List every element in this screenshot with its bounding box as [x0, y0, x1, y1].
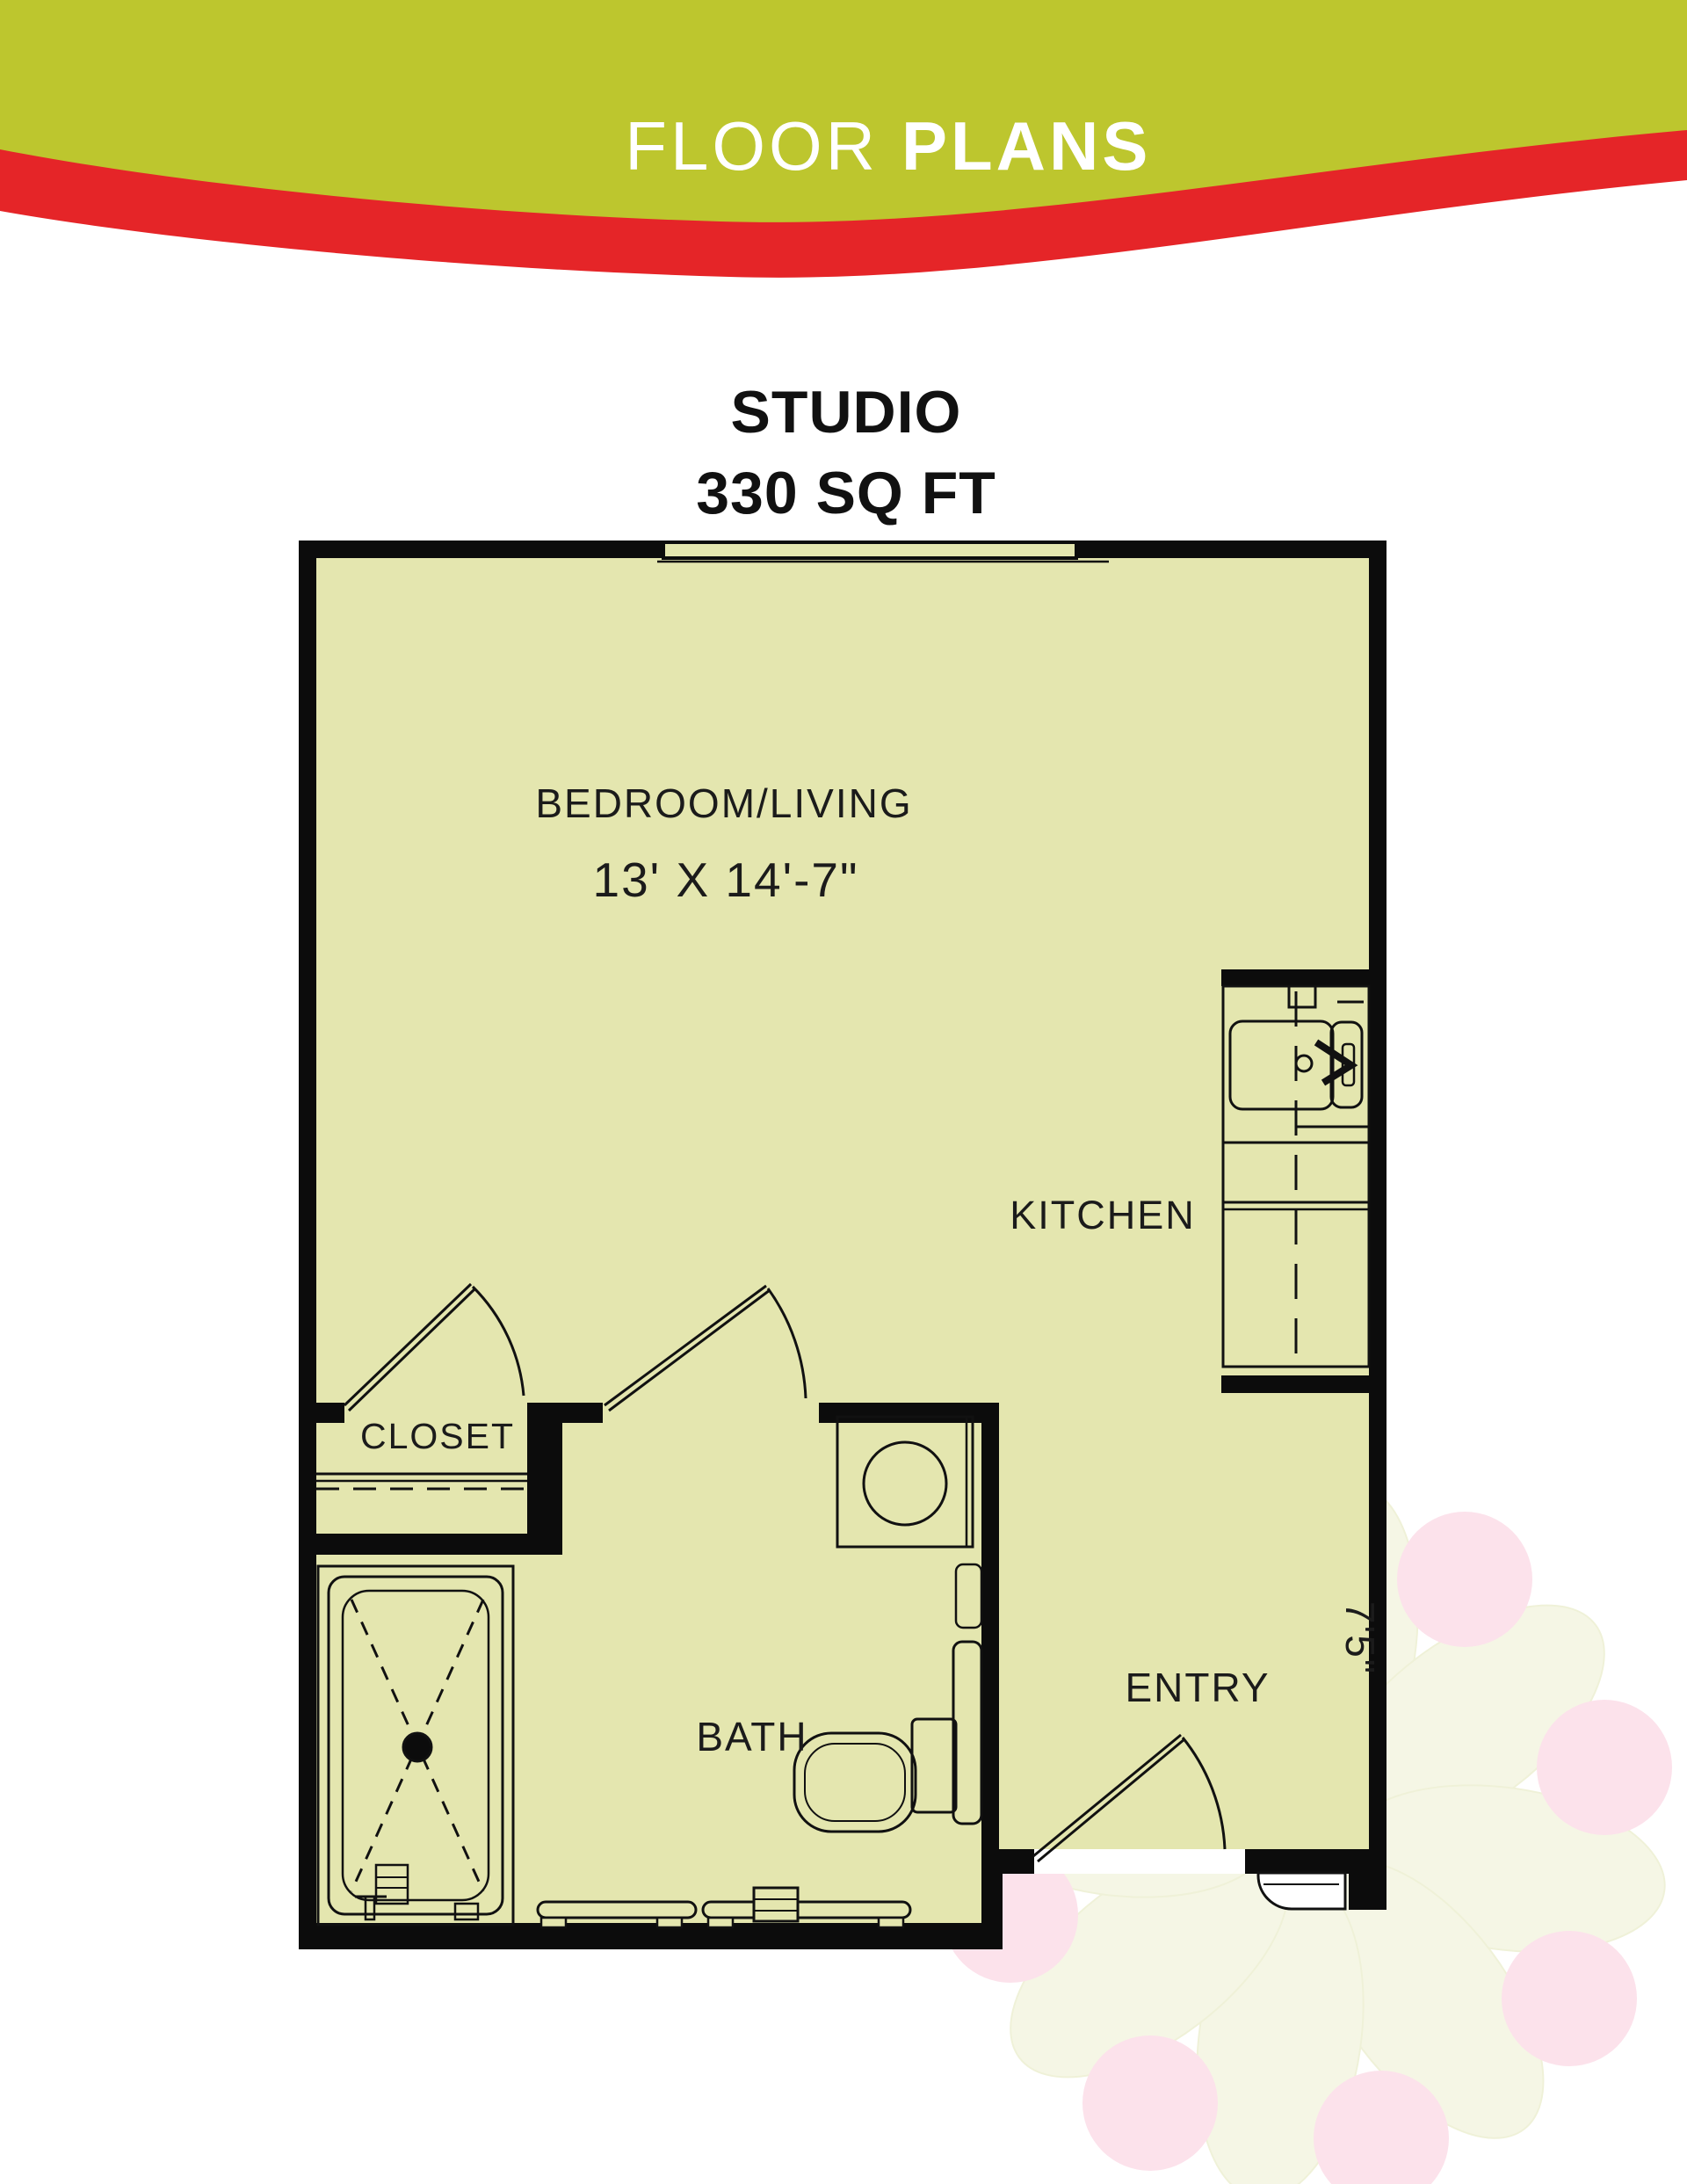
brochure-page: FLOOR PLANS STUDIO 330 SQ FT — [0, 0, 1687, 2184]
header-title-light: FLOOR — [625, 107, 879, 185]
closet-bottom-wall — [299, 1534, 562, 1555]
kitchen-wall-bottom — [1221, 1375, 1387, 1393]
header-title-bold: PLANS — [901, 107, 1151, 185]
bedroom-living-dimensions: 13' X 14'-7" — [592, 853, 858, 907]
bedroom-living-label: BEDROOM/LIVING — [535, 780, 912, 826]
entry-label: ENTRY — [1125, 1665, 1270, 1710]
window-icon — [663, 542, 1076, 558]
closet-wall-left-stub — [299, 1403, 344, 1423]
kitchen-label: KITCHEN — [1010, 1193, 1196, 1237]
closet-label: CLOSET — [360, 1416, 515, 1456]
bath-entry-wall — [981, 1403, 999, 1923]
corner-step-stub — [1349, 1873, 1387, 1910]
entry-bottom-stub-left — [999, 1849, 1034, 1874]
entry-threshold-icon — [1258, 1873, 1345, 1909]
closet-side-wall — [527, 1403, 562, 1536]
entry-door-dimension: 7'5" — [1337, 1601, 1383, 1675]
page-canvas: FLOOR PLANS STUDIO 330 SQ FT — [0, 0, 1687, 2184]
kitchen-wall-top — [1221, 969, 1387, 986]
floor-area — [316, 558, 1369, 1923]
entry-doorway-gap — [1034, 1849, 1245, 1874]
plan-title-line2: 330 SQ FT — [696, 460, 996, 526]
bath-label: BATH — [696, 1714, 807, 1760]
plan-title-line1: STUDIO — [731, 379, 962, 446]
floor-plan: BEDROOM/LIVING 13' X 14'-7" KITCHEN CLOS… — [299, 541, 1387, 1949]
entry-bottom-wall-right — [1245, 1849, 1387, 1874]
shower-drain-icon — [403, 1733, 431, 1761]
